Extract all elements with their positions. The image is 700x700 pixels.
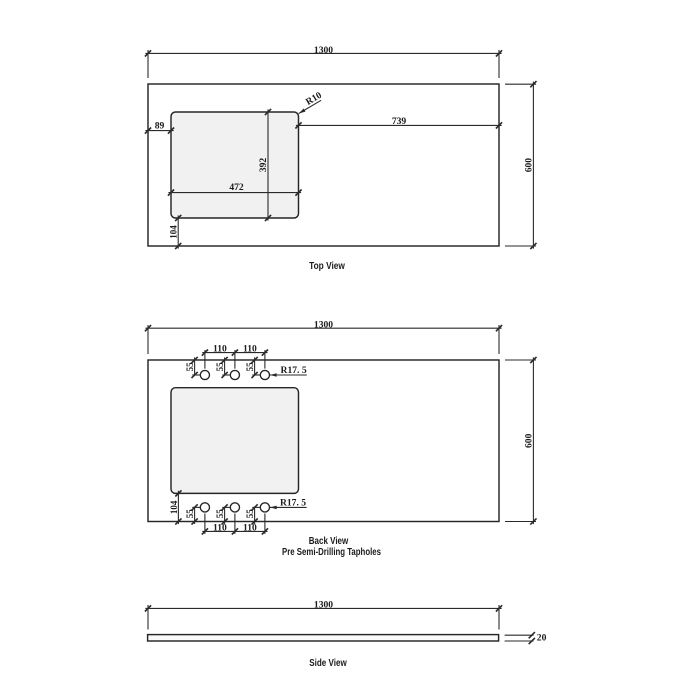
svg-text:55: 55 [245, 362, 255, 372]
svg-text:Pre Semi-Drilling Tapholes: Pre Semi-Drilling Tapholes [282, 547, 381, 558]
svg-text:110: 110 [213, 522, 227, 533]
svg-text:89: 89 [155, 120, 165, 131]
svg-text:55: 55 [215, 509, 225, 519]
svg-text:R17. 5: R17. 5 [281, 365, 307, 376]
svg-text:1300: 1300 [314, 320, 333, 331]
svg-text:55: 55 [185, 362, 195, 372]
svg-text:110: 110 [243, 522, 257, 533]
svg-text:110: 110 [213, 343, 227, 354]
svg-text:600: 600 [523, 433, 534, 448]
svg-text:110: 110 [243, 343, 257, 354]
svg-text:392: 392 [258, 158, 269, 173]
svg-text:1300: 1300 [314, 45, 333, 56]
svg-text:472: 472 [229, 182, 244, 193]
svg-text:55: 55 [185, 509, 195, 519]
svg-text:739: 739 [392, 116, 407, 127]
svg-text:104: 104 [169, 225, 179, 239]
svg-text:Back View: Back View [309, 536, 349, 547]
svg-text:20: 20 [537, 632, 547, 643]
svg-text:104: 104 [169, 500, 179, 514]
svg-text:55: 55 [245, 509, 255, 519]
svg-text:600: 600 [523, 158, 534, 173]
svg-text:1300: 1300 [314, 600, 333, 611]
svg-text:Side View: Side View [309, 658, 347, 669]
svg-text:R17. 5: R17. 5 [280, 497, 306, 508]
svg-text:Top View: Top View [309, 261, 345, 272]
svg-text:55: 55 [215, 362, 225, 372]
